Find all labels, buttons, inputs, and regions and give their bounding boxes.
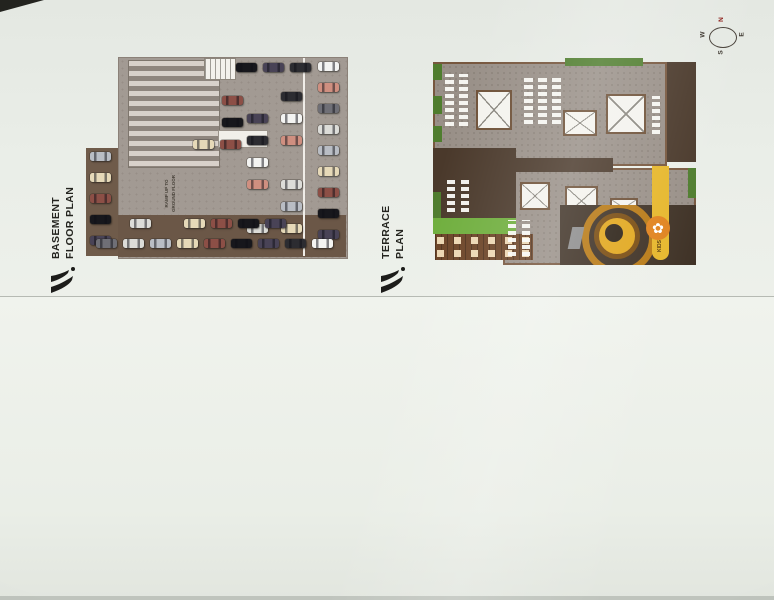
parked-car: [258, 239, 279, 248]
plan-title-line: BASEMENT: [49, 187, 63, 259]
terrace-walkway-strip: [445, 74, 454, 126]
terrace-green-patch: [433, 64, 442, 80]
deck-seat-row: [437, 250, 531, 257]
parked-car: [247, 114, 268, 123]
parked-car: [318, 125, 339, 134]
terrace-walkway-strip: [508, 220, 516, 256]
parked-car: [222, 118, 243, 127]
terrace-wood-deck: [435, 234, 533, 260]
skylight-opening: [563, 110, 597, 136]
terrace-walkway-strip: [447, 178, 455, 212]
parked-car: [184, 219, 205, 228]
terrace-green-patch: [688, 168, 696, 198]
kids-play-area: [560, 205, 696, 265]
basement-staircase: [204, 58, 236, 80]
photo-bottom-edge: [0, 596, 774, 600]
terrace-green-patch: [433, 126, 442, 142]
brochure-photo: RAMP UP TO GROUND FLOOR: [0, 0, 774, 600]
compass-rose-top: N E S W: [700, 16, 744, 56]
parked-car: [290, 63, 311, 72]
compass-south: S: [718, 50, 725, 54]
parked-car: [90, 152, 111, 161]
terrace-walkway-strip: [552, 78, 561, 124]
parked-car: [318, 83, 339, 92]
parked-car: [247, 158, 268, 167]
skylight-opening: [606, 94, 646, 134]
parked-car: [90, 215, 111, 224]
terrace-green-patch: [565, 58, 643, 66]
terrace-lower-roof: [503, 158, 613, 172]
skylight-opening: [520, 182, 550, 210]
parked-car: [96, 239, 117, 248]
parked-car: [285, 239, 306, 248]
basement-plan-title: BASEMENT FLOOR PLAN: [48, 187, 78, 296]
parked-car: [318, 209, 339, 218]
kids-play-flower-icon: ✿: [646, 216, 670, 240]
plan-title-line: PLAN: [393, 205, 407, 259]
parked-car: [90, 173, 111, 182]
parked-car: [281, 114, 302, 123]
basement-drive-aisle: [118, 215, 346, 257]
skylight-opening: [476, 90, 512, 130]
parked-car: [318, 104, 339, 113]
terrace-green-patch: [433, 96, 442, 114]
parked-car: [281, 180, 302, 189]
compass-north: N: [718, 17, 725, 22]
parked-car: [130, 219, 151, 228]
parked-car: [177, 239, 198, 248]
terrace-green-patch: [433, 192, 441, 220]
parked-car: [231, 239, 252, 248]
basement-wall-line: [303, 58, 305, 256]
developer-logo-icon: [378, 266, 408, 296]
parked-car: [312, 239, 333, 248]
parked-car: [318, 146, 339, 155]
parked-car: [318, 188, 339, 197]
kids-play-ring-inner: [605, 224, 623, 242]
terrace-walkway-strip: [522, 220, 530, 256]
parked-car: [247, 136, 268, 145]
terrace-walkway-strip: [652, 96, 660, 134]
terrace-lawn: [433, 218, 516, 234]
plan-title-line: FLOOR PLAN: [63, 187, 77, 259]
parked-car: [318, 230, 339, 239]
parked-car: [238, 219, 259, 228]
terrace-plan-title: TERRACE PLAN: [378, 205, 408, 296]
parked-car: [193, 140, 214, 149]
top-page: RAMP UP TO GROUND FLOOR: [0, 0, 774, 297]
parked-car: [204, 239, 225, 248]
terrace-lower-roof: [667, 62, 696, 162]
parked-car: [281, 202, 302, 211]
terrace-walkway-strip: [538, 78, 547, 124]
plan-title-line: TERRACE: [379, 205, 393, 259]
compass-west: W: [700, 31, 707, 37]
parked-car: [247, 180, 268, 189]
terrace-walkway-strip: [459, 74, 468, 126]
basement-ramp-label: RAMP UP TO GROUND FLOOR: [164, 175, 178, 212]
compass-ring: [709, 27, 737, 48]
compass-east: E: [738, 32, 745, 36]
deck-seat-row: [437, 237, 531, 244]
bottom-page: LIFT LIFT LIFT LIFT ✕ ✕ ✕ RAMP DOWN TO B…: [0, 297, 774, 600]
parked-car: [265, 219, 286, 228]
parked-car: [211, 219, 232, 228]
terrace-walkway-strip: [524, 78, 533, 124]
parked-car: [236, 63, 257, 72]
parked-car: [263, 63, 284, 72]
terrace-walkway-strip: [461, 178, 469, 212]
parked-car: [222, 96, 243, 105]
parked-car: [281, 136, 302, 145]
parked-car: [150, 239, 171, 248]
parked-car: [90, 194, 111, 203]
parked-car: [123, 239, 144, 248]
parked-car: [318, 62, 339, 71]
parked-car: [220, 140, 241, 149]
parked-car: [281, 92, 302, 101]
developer-logo-icon: [48, 266, 78, 296]
parked-car: [318, 167, 339, 176]
